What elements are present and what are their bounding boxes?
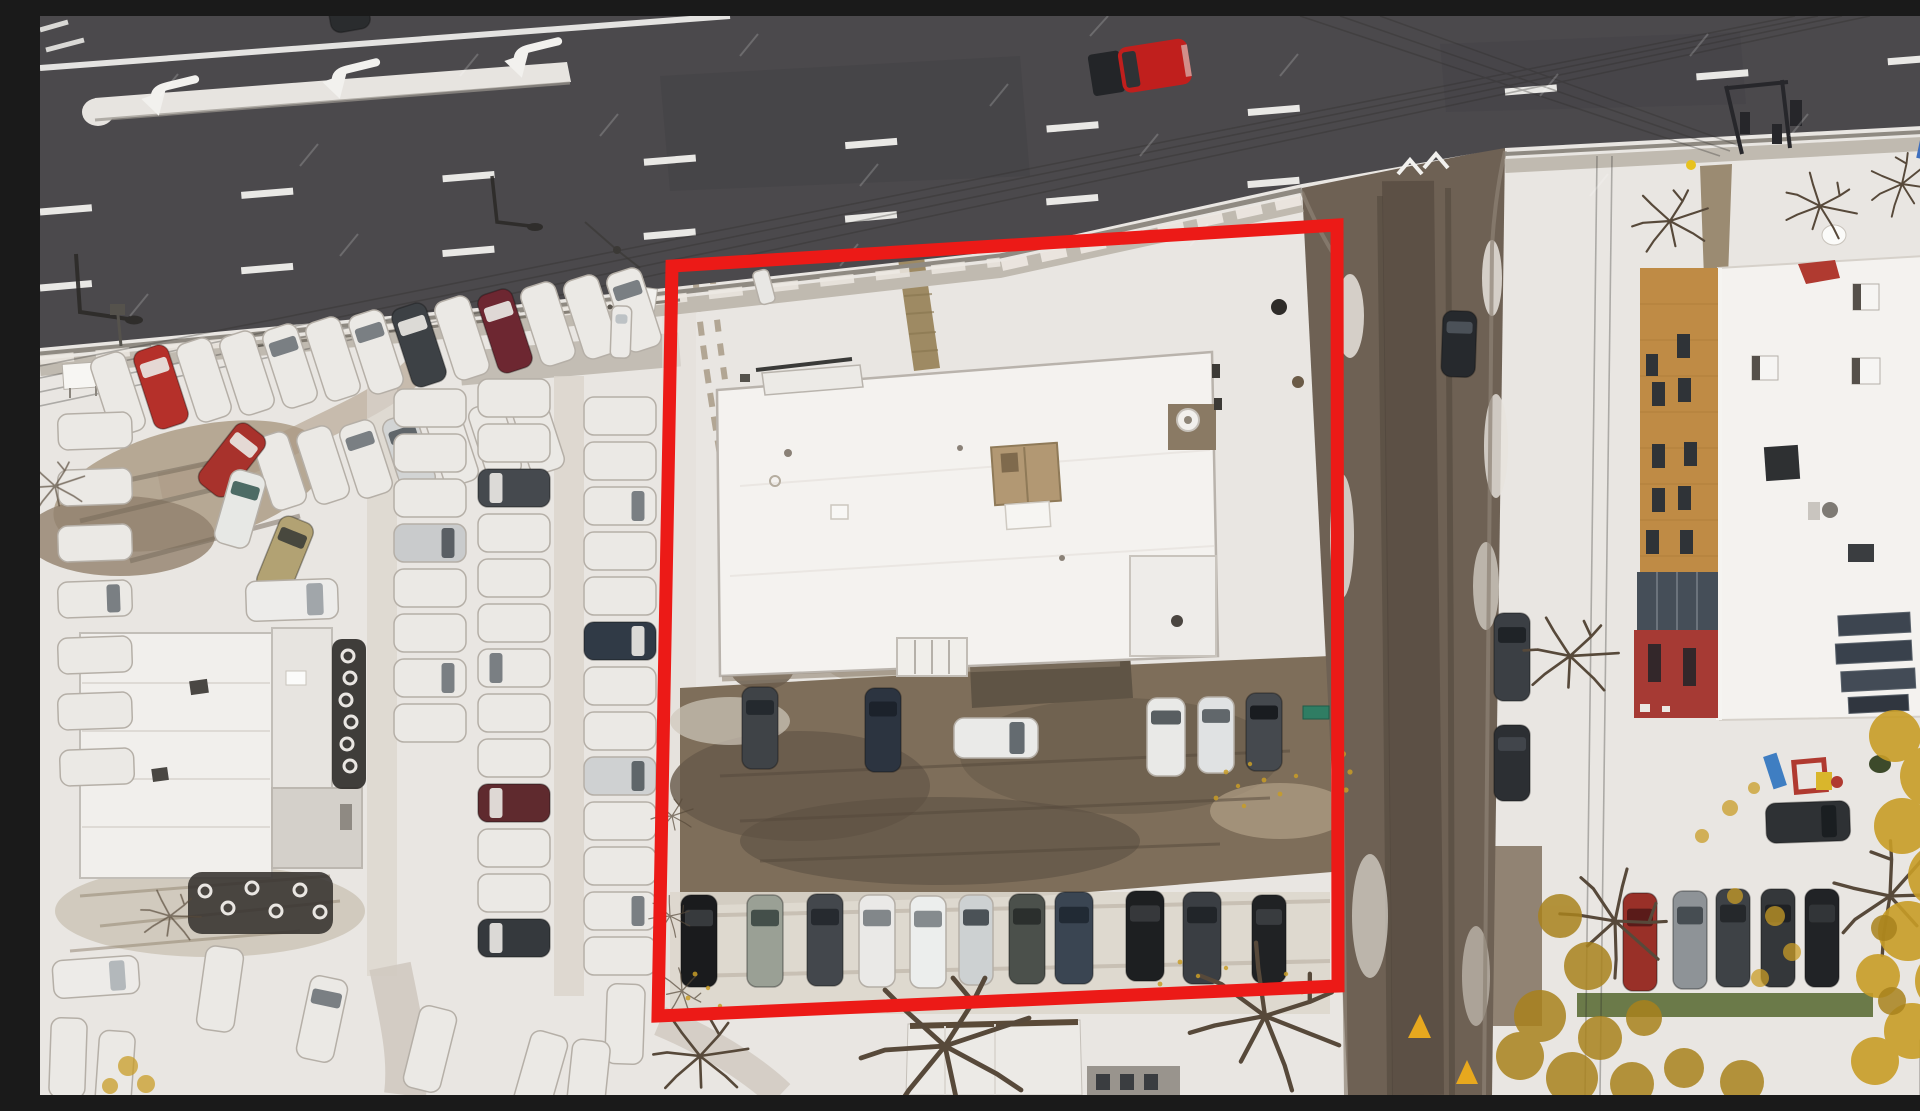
car-windshield <box>1677 907 1703 925</box>
parked-car <box>959 895 993 985</box>
snow-patch <box>1352 854 1388 978</box>
facade-detail <box>1640 704 1650 712</box>
roof-box <box>286 671 306 685</box>
parked-car <box>565 1038 611 1095</box>
car-windshield <box>1446 321 1472 334</box>
parked-car <box>1441 310 1477 377</box>
parked-car <box>1147 698 1185 776</box>
parked-car <box>394 569 466 607</box>
car-windshield <box>1130 905 1160 921</box>
parked-car <box>610 306 632 359</box>
parked-car <box>742 687 778 769</box>
car-windshield <box>632 761 645 791</box>
car-windshield <box>632 491 645 521</box>
parked-car <box>910 896 946 988</box>
parked-car <box>57 412 132 451</box>
parked-car <box>394 659 466 697</box>
parked-car <box>747 895 783 987</box>
parked-car <box>865 688 901 772</box>
car-windshield <box>1256 909 1282 925</box>
aerial-photo: Aerial drone photograph, looking straigh… <box>40 16 1920 1095</box>
parked-car <box>1673 891 1707 989</box>
parked-car <box>478 739 550 777</box>
parked-car <box>1805 889 1839 987</box>
parked-car <box>1765 801 1850 844</box>
parked-car <box>584 757 656 795</box>
car-windshield <box>863 910 891 927</box>
dumpster <box>1303 706 1329 719</box>
roof-skylight <box>831 505 848 519</box>
car-windshield <box>1009 722 1024 754</box>
aerial-photo-canvas <box>40 16 1920 1095</box>
parked-car <box>57 692 132 731</box>
parked-car <box>584 667 656 705</box>
car-windshield <box>1498 737 1526 751</box>
car-windshield <box>751 910 779 927</box>
parked-car <box>57 524 132 563</box>
car-windshield <box>963 909 989 925</box>
parked-car <box>478 514 550 552</box>
car-windshield <box>490 923 503 953</box>
store-building <box>717 352 1222 679</box>
manhole <box>1271 299 1287 315</box>
yellow-marker <box>1686 160 1696 170</box>
roof-dark-box <box>1848 544 1874 562</box>
parked-car <box>1494 725 1530 801</box>
parked-car <box>859 895 895 987</box>
car-windshield <box>1498 627 1526 643</box>
parked-car <box>1183 892 1221 984</box>
parked-car <box>57 636 132 675</box>
car-windshield <box>632 896 645 926</box>
parked-car <box>584 847 656 885</box>
apartment-building <box>1634 225 1920 792</box>
parked-car <box>1009 894 1045 984</box>
car-windshield <box>869 701 897 716</box>
playground-climber-deck <box>1816 772 1832 790</box>
parked-car <box>1055 892 1093 984</box>
car-windshield <box>106 584 120 612</box>
parked-car <box>394 524 466 562</box>
roof-box <box>740 374 750 382</box>
parked-car <box>394 479 466 517</box>
car-windshield <box>1202 709 1230 723</box>
car-windshield <box>811 909 839 926</box>
facade-window <box>1683 648 1696 686</box>
parked-car <box>954 718 1038 758</box>
roof-vent-court <box>1168 404 1216 450</box>
car-windshield <box>1821 805 1837 838</box>
mud-dark-patch <box>740 797 1140 885</box>
parked-car <box>584 622 656 660</box>
parked-car <box>584 892 656 930</box>
roof-vent <box>189 679 209 695</box>
roof-edge-vent <box>1214 398 1222 410</box>
car-windshield <box>490 653 503 683</box>
car-windshield <box>442 528 455 558</box>
asphalt-patch <box>660 56 1030 191</box>
house-windows <box>1096 1074 1158 1090</box>
parked-car <box>57 580 132 619</box>
snow-median-tip <box>82 98 114 126</box>
parked-car <box>478 919 550 957</box>
parked-car <box>59 748 134 787</box>
car-windshield <box>685 910 713 927</box>
car-windshield <box>1720 905 1746 923</box>
parked-car <box>245 578 338 621</box>
playground-ball <box>1831 776 1843 788</box>
car-windshield <box>490 473 503 503</box>
parked-car <box>478 694 550 732</box>
parked-car <box>584 937 656 975</box>
parked-car <box>1126 891 1164 981</box>
car-windshield <box>1151 710 1181 724</box>
parked-car <box>478 784 550 822</box>
car-windshield <box>490 788 503 818</box>
parked-car <box>478 469 550 507</box>
entrance-canopy <box>897 638 967 676</box>
parked-car <box>394 614 466 652</box>
snow-patch <box>1473 542 1499 630</box>
wood-facade <box>1640 268 1718 572</box>
car-windshield <box>442 663 455 693</box>
car-windshield <box>746 700 774 715</box>
parked-car <box>57 468 132 507</box>
annex-door <box>340 804 352 830</box>
roof-vent <box>151 767 169 782</box>
parked-car <box>478 379 550 417</box>
parked-car <box>1198 697 1234 773</box>
parked-car <box>1246 693 1282 771</box>
roof-round-vent <box>1822 502 1838 518</box>
grass-strip <box>1577 993 1873 1017</box>
car-windshield <box>1013 908 1041 924</box>
parked-car <box>584 487 656 525</box>
car-windshield <box>1250 705 1278 719</box>
car-windshield <box>632 626 645 656</box>
parked-car <box>478 559 550 597</box>
parked-car <box>584 577 656 615</box>
parked-car <box>478 649 550 687</box>
parked-car <box>394 389 466 427</box>
lower-roof-section <box>1130 556 1216 656</box>
roof-dark-vent <box>1764 445 1800 481</box>
parked-car <box>478 874 550 912</box>
car-windshield <box>615 314 627 324</box>
parked-car <box>584 397 656 435</box>
parked-car <box>394 434 466 472</box>
annex-roof <box>272 628 332 798</box>
parked-car <box>584 802 656 840</box>
parked-car <box>807 894 843 986</box>
parked-car <box>478 829 550 867</box>
roof-dot <box>1171 615 1183 627</box>
snow-patch <box>1484 394 1508 498</box>
car-windshield <box>914 911 942 928</box>
parked-car <box>584 712 656 750</box>
car-windshield <box>1187 907 1217 924</box>
parked-car <box>478 604 550 642</box>
snow-smear <box>1210 783 1350 839</box>
roof-edge-vent <box>1212 364 1220 378</box>
roof-small-box <box>1808 502 1820 520</box>
parked-car <box>1494 613 1530 701</box>
manhole <box>1292 376 1304 388</box>
car-windshield <box>109 960 127 991</box>
parked-car <box>49 1017 88 1095</box>
parked-car <box>478 424 550 462</box>
facade-window <box>1648 644 1661 682</box>
car-windshield <box>1059 907 1089 924</box>
facade-detail <box>1662 706 1670 712</box>
parked-car <box>52 955 140 999</box>
parked-car <box>681 895 717 987</box>
parked-car <box>394 704 466 742</box>
parked-car <box>584 532 656 570</box>
parked-car <box>584 442 656 480</box>
car-windshield <box>1809 905 1835 923</box>
wet-track <box>1408 181 1418 1095</box>
car-windshield <box>306 583 324 616</box>
